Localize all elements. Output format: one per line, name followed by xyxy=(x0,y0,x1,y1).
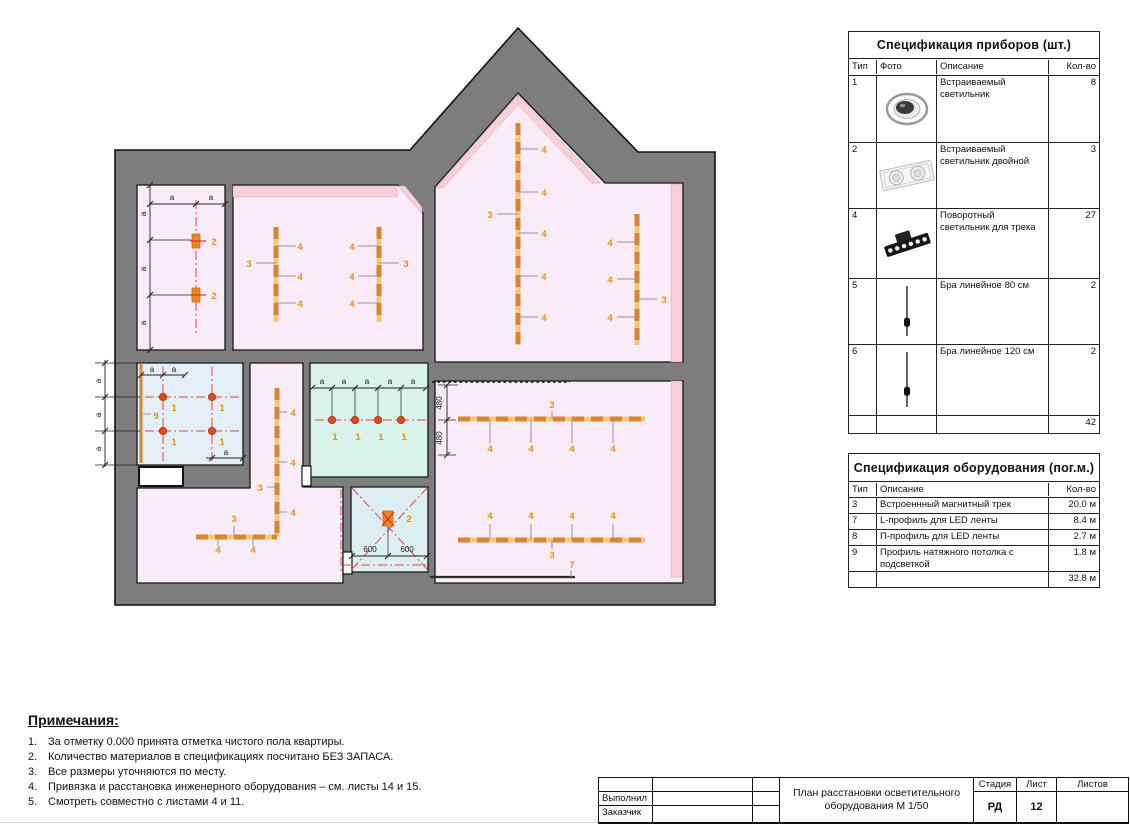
equipment-row-3: 3Встроеннный магнитный трек20.0 м xyxy=(849,497,1099,513)
spec-devices-total: 42 xyxy=(1048,416,1099,433)
equipment-desc: П-профиль для LED ленты xyxy=(876,530,1048,545)
photo-track-spot xyxy=(878,210,936,277)
fixture-type-label: 4 xyxy=(610,511,616,522)
col-header-type: Тип xyxy=(849,483,876,497)
fixture-type-label: 4 xyxy=(569,444,575,455)
drawing-title-line1: План расстановки осветительного xyxy=(793,787,960,800)
drawing-sheet: { "plan": { "colors": { "wall": "#7d7d7d… xyxy=(0,0,1130,822)
spec-devices-table: Спецификация приборов (шт.) Тип Фото Опи… xyxy=(848,31,1100,434)
fixture-type-label: 1 xyxy=(171,437,177,448)
equipment-row-7: 7L-профиль для LED ленты8.4 м xyxy=(849,513,1099,529)
customer-label: Заказчик xyxy=(599,806,652,820)
fixture-type-label: 4 xyxy=(607,313,613,324)
fixture-type-label: 3 xyxy=(403,259,408,270)
fixture-type-label: 1 xyxy=(219,437,225,448)
equipment-type: 3 xyxy=(849,498,876,513)
device-type: 2 xyxy=(849,143,876,208)
fixture-type-label: 4 xyxy=(297,299,303,310)
device-row-1: 1Встраиваемый светильник8 xyxy=(849,75,1099,142)
spec-devices-header: Тип Фото Описание Кол-во xyxy=(849,58,1099,75)
dimension-label: a xyxy=(139,266,148,271)
fixture-type-label: 1 xyxy=(401,432,407,443)
fixture-type-label: 4 xyxy=(487,444,493,455)
fixture-type-label: 2 xyxy=(211,237,216,248)
note-item-1: 1.За отметку 0.000 принята отметка чисто… xyxy=(28,735,448,750)
spec-equipment-title: Спецификация оборудования (пог.м.) xyxy=(849,454,1099,481)
title-block-dates xyxy=(753,778,780,822)
fixture-type-label: 4 xyxy=(528,511,534,522)
fixture-type-label: 4 xyxy=(290,408,296,419)
equipment-type: 8 xyxy=(849,530,876,545)
spec-equipment-total: 32.8 м xyxy=(1048,572,1099,587)
stage-value: РД xyxy=(974,792,1016,822)
stage-cell: Стадия РД xyxy=(974,778,1017,822)
room-x-room xyxy=(351,487,428,572)
dimension-label: a xyxy=(94,378,103,383)
fixture-type-label: 4 xyxy=(297,272,303,283)
led-strip-zone xyxy=(671,381,682,577)
fixture-type-label: 3 xyxy=(257,483,262,494)
note-item-4: 4.Привязка и расстановка инженерного обо… xyxy=(28,780,448,795)
room-bottom-right-room xyxy=(435,381,683,583)
fixture-type-label: 2 xyxy=(211,291,216,302)
photo-recessed-double xyxy=(878,144,936,207)
fixture-type-label: 3 xyxy=(231,514,236,525)
stage-label: Стадия xyxy=(974,778,1016,792)
dimension-label: a xyxy=(170,193,175,202)
sheets-value xyxy=(1057,792,1128,822)
dimension-label: a xyxy=(388,377,393,386)
dimension-label: a xyxy=(94,412,103,417)
col-header-photo: Фото xyxy=(876,60,936,74)
fixture-type-label: 4 xyxy=(349,299,355,310)
device-qty: 27 xyxy=(1048,209,1099,278)
equipment-row-8: 8П-профиль для LED ленты2.7 м xyxy=(849,529,1099,545)
dimension-label: 600 xyxy=(400,545,414,554)
device-desc: Встраиваемый светильник двойной xyxy=(936,143,1048,208)
room-room-2 xyxy=(233,185,423,350)
notes-list: 1.За отметку 0.000 принята отметка чисто… xyxy=(28,735,448,810)
dimension-label: a xyxy=(209,193,214,202)
sheets-cell: Листов xyxy=(1057,778,1128,822)
spec-equipment-header: Тип Описание Кол-во xyxy=(849,481,1099,497)
device-desc: Встраиваемый светильник xyxy=(936,76,1048,142)
dimension-label: a xyxy=(320,377,325,386)
fixture-type-label: 2 xyxy=(406,514,411,525)
dimension-label: a xyxy=(365,377,370,386)
recessed-light-symbol xyxy=(159,393,166,400)
dimension-label: a xyxy=(411,377,416,386)
device-qty: 3 xyxy=(1048,143,1099,208)
fixture-type-label: 4 xyxy=(290,508,296,519)
fixture-type-label: 9 xyxy=(153,411,158,422)
dimension-label: 480 xyxy=(435,396,444,410)
dimension-label: a xyxy=(172,365,177,374)
led-strip-zone xyxy=(671,184,682,362)
wall-opening xyxy=(302,466,311,486)
device-row-6: 6Бра линейное 120 см2 xyxy=(849,344,1099,415)
spec-devices-title: Спецификация приборов (шт.) xyxy=(849,32,1099,58)
device-qty: 2 xyxy=(1048,345,1099,415)
col-header-type: Тип xyxy=(849,60,876,74)
dimension-label: a xyxy=(224,448,229,457)
device-type: 1 xyxy=(849,76,876,142)
equipment-row-9: 9Профиль натяжного потолка с подсветкой1… xyxy=(849,545,1099,571)
device-type: 5 xyxy=(849,279,876,344)
dimension-label: a xyxy=(94,446,103,451)
dimension-label: a xyxy=(139,211,148,216)
notes-title: Примечания: xyxy=(28,712,448,728)
equipment-desc: Встроеннный магнитный трек xyxy=(876,498,1048,513)
col-header-desc: Описание xyxy=(876,483,1048,497)
equipment-qty: 20.0 м xyxy=(1048,498,1099,513)
equipment-qty: 1.8 м xyxy=(1048,546,1099,571)
equipment-desc: L-профиль для LED ленты xyxy=(876,514,1048,529)
recessed-light-symbol xyxy=(374,416,381,423)
fixture-type-label: 4 xyxy=(610,444,616,455)
title-block-roles: Выполнил Заказчик xyxy=(599,778,653,822)
fixture-type-label: 4 xyxy=(290,458,296,469)
fixture-type-label: 4 xyxy=(541,272,547,283)
fixture-type-label: 4 xyxy=(569,511,575,522)
fixture-type-label: 1 xyxy=(171,403,177,414)
recessed-light-symbol xyxy=(208,427,215,434)
device-qty: 2 xyxy=(1048,279,1099,344)
spec-equipment-total-row: 32.8 м xyxy=(849,571,1099,587)
device-type: 6 xyxy=(849,345,876,415)
fixture-type-label: 3 xyxy=(549,550,554,561)
fixture-type-label: 1 xyxy=(332,432,338,443)
recessed-light-symbol xyxy=(208,393,215,400)
dimension-label: a xyxy=(342,377,347,386)
col-header-desc: Описание xyxy=(936,60,1048,74)
fixture-type-label: 4 xyxy=(541,313,547,324)
dimension-label: 600 xyxy=(363,545,377,554)
recessed-light-symbol xyxy=(159,427,166,434)
photo-recessed-round xyxy=(878,77,936,141)
sheet-cell: Лист 12 xyxy=(1017,778,1057,822)
device-row-4: 4Поворотный светильник для трека27 xyxy=(849,208,1099,278)
photo-linear-sconce xyxy=(878,280,936,343)
note-item-5: 5.Смотреть совместно с листами 4 и 11. xyxy=(28,795,448,810)
title-block: Выполнил Заказчик План расстановки освет… xyxy=(598,777,1129,824)
dimension-label: a xyxy=(150,365,155,374)
recessed-light-symbol xyxy=(351,416,358,423)
note-item-2: 2.Количество материалов в спецификациях … xyxy=(28,750,448,765)
fixture-type-label: 4 xyxy=(349,242,355,253)
equipment-qty: 2.7 м xyxy=(1048,530,1099,545)
equipment-type: 9 xyxy=(849,546,876,571)
sheet-label: Лист xyxy=(1017,778,1056,792)
fixture-type-label: 4 xyxy=(349,272,355,283)
spec-devices-total-row: 42 xyxy=(849,415,1099,433)
device-type: 4 xyxy=(849,209,876,278)
fixture-type-label: 3 xyxy=(549,400,554,411)
col-header-qty: Кол-во xyxy=(1048,483,1099,497)
fixture-type-label: 4 xyxy=(541,188,547,199)
fixture-type-label: 4 xyxy=(487,511,493,522)
photo-linear-sconce xyxy=(878,346,936,414)
device-qty: 8 xyxy=(1048,76,1099,142)
device-row-2: 2Встраиваемый светильник двойной3 xyxy=(849,142,1099,208)
fixture-type-label: 3 xyxy=(246,259,251,270)
fixture-type-label: 4 xyxy=(607,238,613,249)
fixture-type-label: 3 xyxy=(661,295,666,306)
executor-label: Выполнил xyxy=(599,792,652,806)
device-desc: Бра линейное 80 см xyxy=(936,279,1048,344)
sheets-label: Листов xyxy=(1057,778,1128,792)
wall-opening xyxy=(343,552,352,574)
drawing-title-line2: оборудования М 1/50 xyxy=(825,800,929,813)
fixture-type-label: 4 xyxy=(250,545,256,556)
device-row-5: 5Бра линейное 80 см2 xyxy=(849,278,1099,344)
equipment-type: 7 xyxy=(849,514,876,529)
fixture-type-label: 4 xyxy=(541,145,547,156)
fixture-type-label: 1 xyxy=(355,432,361,443)
recessed-light-symbol xyxy=(397,416,404,423)
title-block-signatures xyxy=(653,778,753,822)
spec-equipment-table: Спецификация оборудования (пог.м.) Тип О… xyxy=(848,453,1100,588)
drawing-title: План расстановки осветительного оборудов… xyxy=(780,778,974,822)
fixture-type-label: 4 xyxy=(215,545,221,556)
wall-opening xyxy=(139,467,183,486)
dimension-label: 480 xyxy=(435,431,444,445)
led-strip-zone xyxy=(233,186,397,197)
fixture-type-label: 4 xyxy=(541,229,547,240)
fixture-type-label: 7 xyxy=(569,560,574,571)
fixture-type-label: 1 xyxy=(378,432,384,443)
dimension-label: a xyxy=(139,320,148,325)
sheet-value: 12 xyxy=(1017,792,1056,822)
device-desc: Поворотный светильник для трека xyxy=(936,209,1048,278)
fixture-type-label: 4 xyxy=(607,275,613,286)
equipment-qty: 8.4 м xyxy=(1048,514,1099,529)
device-desc: Бра линейное 120 см xyxy=(936,345,1048,415)
col-header-qty: Кол-во xyxy=(1048,60,1099,74)
equipment-desc: Профиль натяжного потолка с подсветкой xyxy=(876,546,1048,571)
notes-block: Примечания: 1.За отметку 0.000 принята о… xyxy=(28,712,448,810)
fixture-type-label: 4 xyxy=(528,444,534,455)
fixture-type-label: 1 xyxy=(219,403,225,414)
fixture-type-label: 3 xyxy=(487,210,492,221)
note-item-3: 3.Все размеры уточняются по месту. xyxy=(28,765,448,780)
recessed-light-symbol xyxy=(328,416,335,423)
fixture-type-label: 4 xyxy=(297,242,303,253)
